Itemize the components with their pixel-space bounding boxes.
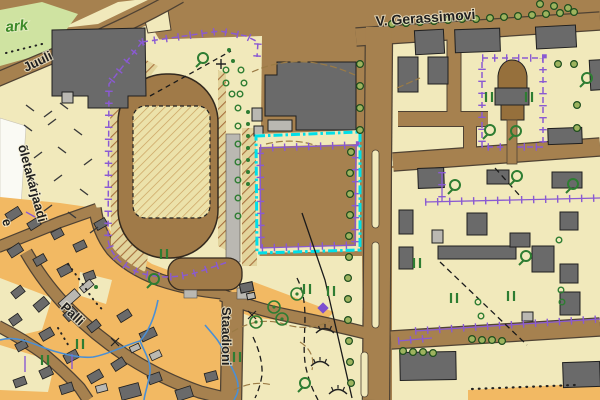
sports-court: [168, 258, 242, 290]
traffic-island-1: [372, 150, 379, 228]
traffic-island-3: [361, 352, 368, 397]
shed-e1: [432, 230, 443, 243]
stadium-field: [133, 106, 210, 218]
selected-parcel[interactable]: [256, 130, 360, 253]
apartment-1: [414, 29, 444, 54]
building-e9: [532, 246, 554, 272]
building-s2: [563, 361, 600, 387]
building-e11: [560, 264, 578, 283]
apartment-2: [455, 28, 501, 53]
building-e4: [399, 210, 413, 234]
label-staadioni: Staadioni: [219, 307, 234, 366]
church-dome: [498, 60, 527, 92]
church-nave: [495, 88, 529, 105]
building-e5: [399, 247, 413, 269]
label-park: ark: [5, 17, 30, 36]
building-e6: [467, 213, 487, 235]
paved-strip-east: [226, 134, 240, 262]
building-e8: [510, 233, 530, 247]
shed-e2: [522, 312, 533, 321]
stadium-hatch-sliver: [218, 70, 226, 250]
house-strip-2: [246, 292, 255, 300]
shed-light-2: [184, 290, 197, 298]
traffic-island-2: [372, 242, 379, 328]
building-topleft-annex: [62, 92, 73, 103]
apartment-3: [535, 25, 576, 49]
sports-hall-apron: [268, 120, 292, 131]
apartment-5: [428, 57, 448, 84]
map-viewport[interactable]: ark Juuli V. Gerassimovi õletakarjaadi e…: [0, 0, 600, 400]
building-s1: [400, 352, 456, 381]
church-porch: [501, 105, 524, 120]
building-e12: [560, 292, 580, 315]
map-canvas[interactable]: ark Juuli V. Gerassimovi õletakarjaadi e…: [0, 0, 600, 400]
annex-1: [252, 108, 262, 121]
building-e7-long: [438, 246, 516, 259]
building-e10: [560, 212, 578, 230]
